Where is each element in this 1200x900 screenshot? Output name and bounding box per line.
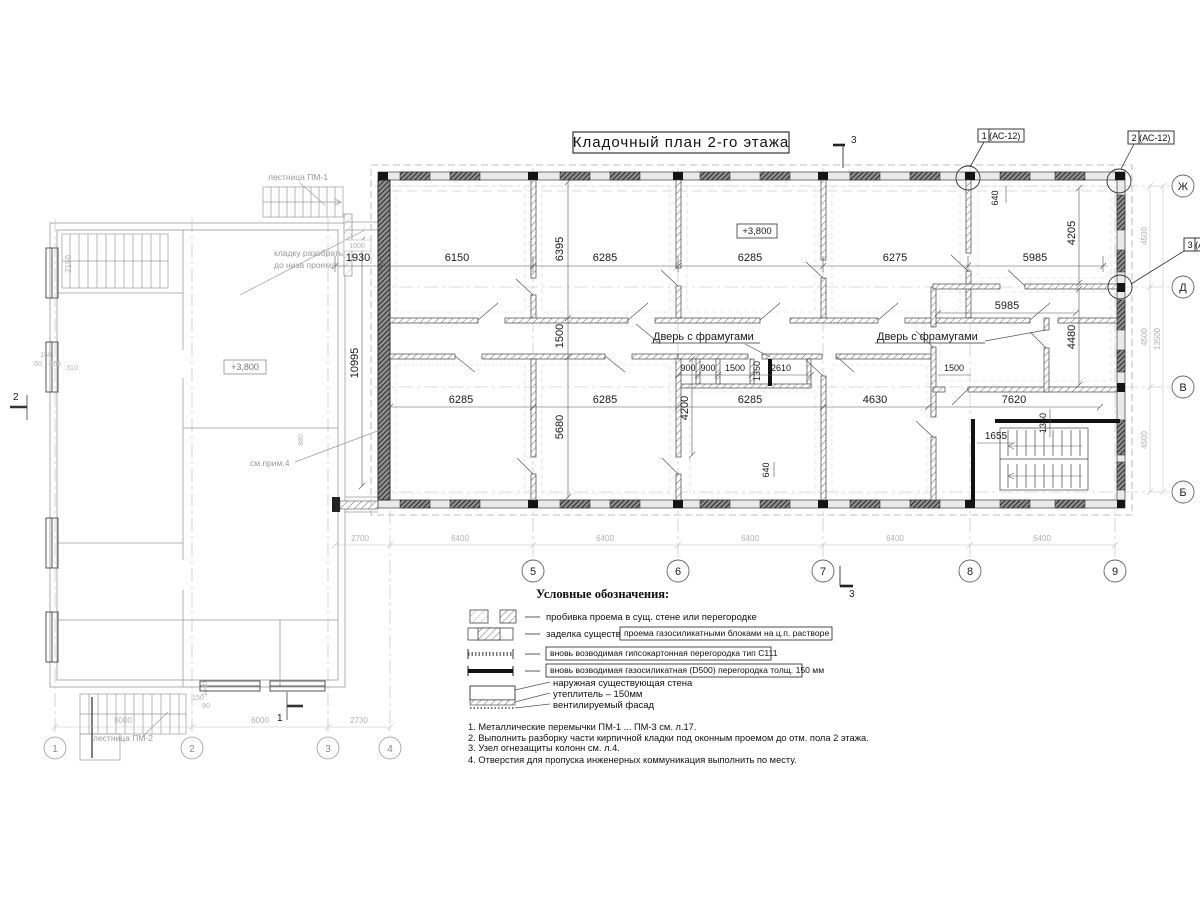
dim-label-grey: 1000 xyxy=(349,243,365,250)
level-mark-left: +3,800 xyxy=(224,360,266,374)
dim-label-grey: 4500 xyxy=(1140,227,1149,245)
dim-label-grey: 150 xyxy=(40,352,52,359)
dim-label: 6285 xyxy=(593,252,617,264)
dim-label: 7620 xyxy=(1002,394,1026,406)
existing-building xyxy=(50,214,378,687)
page-title: Кладочный план 2-го этажа xyxy=(573,134,789,151)
svg-text:+3,800: +3,800 xyxy=(742,226,771,237)
window-piers xyxy=(400,172,1125,508)
dim-label: 640 xyxy=(761,462,771,477)
dim-label-grey: 6400 xyxy=(741,534,759,543)
dim-label: 1930 xyxy=(346,252,370,264)
axis-label: 1 xyxy=(52,744,58,755)
note-line: 4. Отверстия для пропуска инженерных ком… xyxy=(468,755,797,765)
axis-label: В xyxy=(1179,382,1186,394)
dim-label-grey: 150 xyxy=(192,695,204,702)
dim-label-grey: 880 xyxy=(298,434,305,446)
dim-label-grey: 13500 xyxy=(1153,327,1162,350)
drawing-sheet: 1930 6150 6285 6285 6275 5985 6285 6285 … xyxy=(0,0,1200,900)
dim-label: 10995 xyxy=(349,348,361,379)
axes-right-labels: Ж Д В Б xyxy=(1178,181,1188,499)
axis-label: 6 xyxy=(675,566,681,578)
dim-label: 1500 xyxy=(554,324,566,348)
svg-text:2: 2 xyxy=(13,392,19,403)
axis-label: Б xyxy=(1179,487,1186,499)
axis-label: 3 xyxy=(325,744,331,755)
dim-label-grey: 60 xyxy=(34,361,42,368)
note-line: 2. Выполнить разборку части кирпичной кл… xyxy=(468,733,869,743)
dim-label-grey: 2700 xyxy=(351,534,369,543)
dim-label: 1500 xyxy=(944,363,964,373)
level-mark-main: +3,800 xyxy=(737,224,777,238)
dim-label-grey: 300 xyxy=(49,361,61,368)
dim-label: 5985 xyxy=(995,300,1019,312)
axis-label: Д xyxy=(1179,282,1187,294)
dim-label-grey: 6000 xyxy=(251,716,269,725)
legend-row3-boxed: вновь возводимая гипсокартонная перегоро… xyxy=(550,648,778,658)
stair-pm1-label: лестница ПМ-1 xyxy=(268,172,328,182)
dim-label: 900 xyxy=(680,363,695,373)
axis-label: 2 xyxy=(189,744,195,755)
dim-label: 6285 xyxy=(738,394,762,406)
svg-text:Дверь с фрамугами: Дверь с фрамугами xyxy=(877,331,978,343)
legend-heading: Условные обозначения: xyxy=(536,587,669,601)
legend-row5-line2: утеплитель – 150мм xyxy=(553,689,642,700)
dim-label-grey: 6400 xyxy=(886,534,904,543)
svg-text:3: 3 xyxy=(849,589,855,600)
section-mark-3-bottom: 3 xyxy=(840,566,855,600)
svg-text:1: 1 xyxy=(277,713,283,724)
axes-left-building-labels: 1 2 3 4 xyxy=(52,744,393,755)
axes-right xyxy=(1172,175,1194,503)
dim-label: 4205 xyxy=(1066,221,1078,245)
svg-text:+3,800: +3,800 xyxy=(231,362,259,372)
dim-label-grey: 6400 xyxy=(596,534,614,543)
dim-label: 1360 xyxy=(1038,413,1048,433)
dim-label-grey: 2150 xyxy=(64,255,73,273)
existing-internal-stair xyxy=(62,234,168,288)
section-mark-1: 1 xyxy=(277,692,303,724)
dim-label: 1500 xyxy=(725,363,745,373)
legend-row2-boxed: проема газосиликатными блоками на ц.п. р… xyxy=(624,628,829,638)
dim-label: 5680 xyxy=(554,415,566,439)
dim-label-grey: 4500 xyxy=(1140,431,1149,449)
see-note-label: см.прим.4 xyxy=(250,458,290,468)
dim-label: 6285 xyxy=(593,394,617,406)
dim-label: 4630 xyxy=(863,394,887,406)
door-with-transom-label-1: Дверь с фрамугами xyxy=(636,324,770,357)
dim-label: 5985 xyxy=(1023,252,1047,264)
dim-label-grey: 6000 xyxy=(114,716,132,725)
svg-text:1 (АС-12): 1 (АС-12) xyxy=(982,131,1021,141)
legend-row2-prefix: заделка существ. xyxy=(546,629,623,640)
demolish-note-line1: кладку разобрать xyxy=(274,248,344,258)
dim-label: 2610 xyxy=(771,363,791,373)
legend-row1-text: пробивка проема в сущ. стене или перегор… xyxy=(546,612,757,623)
svg-text:3 (АС-12): 3 (АС-12) xyxy=(1188,240,1200,250)
section-mark-3-top: 3 xyxy=(833,135,857,168)
door-with-transom-label-2: Дверь с фрамугами xyxy=(875,330,1046,343)
junction-wall-black xyxy=(332,497,340,512)
left-building-labels: лестница ПМ-1 кладку разобрать до низа п… xyxy=(34,172,380,743)
dim-label-grey: 310 xyxy=(66,365,78,372)
axis-label: 7 xyxy=(820,566,826,578)
svg-text:2 (АС-12): 2 (АС-12) xyxy=(1132,133,1171,143)
main-stair xyxy=(1000,428,1088,490)
section-mark-2: 2 xyxy=(10,392,27,420)
external-stair-pm1 xyxy=(263,187,343,217)
dim-label: 640 xyxy=(990,190,1000,205)
axis-label: 8 xyxy=(967,566,973,578)
axis-label: 9 xyxy=(1112,566,1118,578)
drawing-title: Кладочный план 2-го этажа xyxy=(573,132,789,153)
svg-text:Дверь с фрамугами: Дверь с фрамугами xyxy=(653,331,754,343)
dim-label: 4200 xyxy=(679,396,691,420)
dim-label: 900 xyxy=(700,363,715,373)
dim-label-grey: 6400 xyxy=(1033,534,1051,543)
dim-label-grey: 2730 xyxy=(350,716,368,725)
axis-label: 5 xyxy=(530,566,536,578)
dim-label: 4480 xyxy=(1066,325,1078,349)
dim-label: 6285 xyxy=(449,394,473,406)
dim-label: 1655 xyxy=(985,431,1008,442)
dim-label-grey: 90 xyxy=(202,703,210,710)
legend: Условные обозначения: пробивка проема в … xyxy=(468,587,832,711)
axis-label: Ж xyxy=(1178,181,1188,193)
note-line: 1. Металлические перемычки ПМ-1 ... ПМ-3… xyxy=(468,722,696,732)
legend-row5-line3: вентилируемый фасад xyxy=(553,700,655,711)
dim-label: 6275 xyxy=(883,252,907,264)
dim-label: 6285 xyxy=(738,252,762,264)
dim-label-grey: 4500 xyxy=(1140,328,1149,346)
svg-text:3: 3 xyxy=(851,135,857,146)
note-line: 3. Узел огнезащиты колонн см. л.4. xyxy=(468,743,620,753)
axis-label: 4 xyxy=(387,744,393,755)
existing-building-windows xyxy=(46,248,325,691)
legend-row4-boxed: вновь возводимая газосиликатная (D500) п… xyxy=(550,665,824,675)
masonry-plan-svg: 1930 6150 6285 6285 6275 5985 6285 6285 … xyxy=(0,0,1200,900)
dim-label: 6150 xyxy=(445,252,469,264)
axes-main-bottom-labels: 5 6 7 8 9 xyxy=(530,566,1118,578)
notes: 1. Металлические перемычки ПМ-1 ... ПМ-3… xyxy=(468,722,869,765)
legend-row5-line1: наружная существующая стена xyxy=(553,678,693,689)
dim-label: 6395 xyxy=(554,237,566,261)
dim-label: 1350 xyxy=(752,361,762,381)
dim-label-grey: 6400 xyxy=(451,534,469,543)
junction-wall-hatched xyxy=(340,501,378,509)
dim-labels-top: 1930 6150 6285 6285 6275 5985 xyxy=(346,252,1047,264)
